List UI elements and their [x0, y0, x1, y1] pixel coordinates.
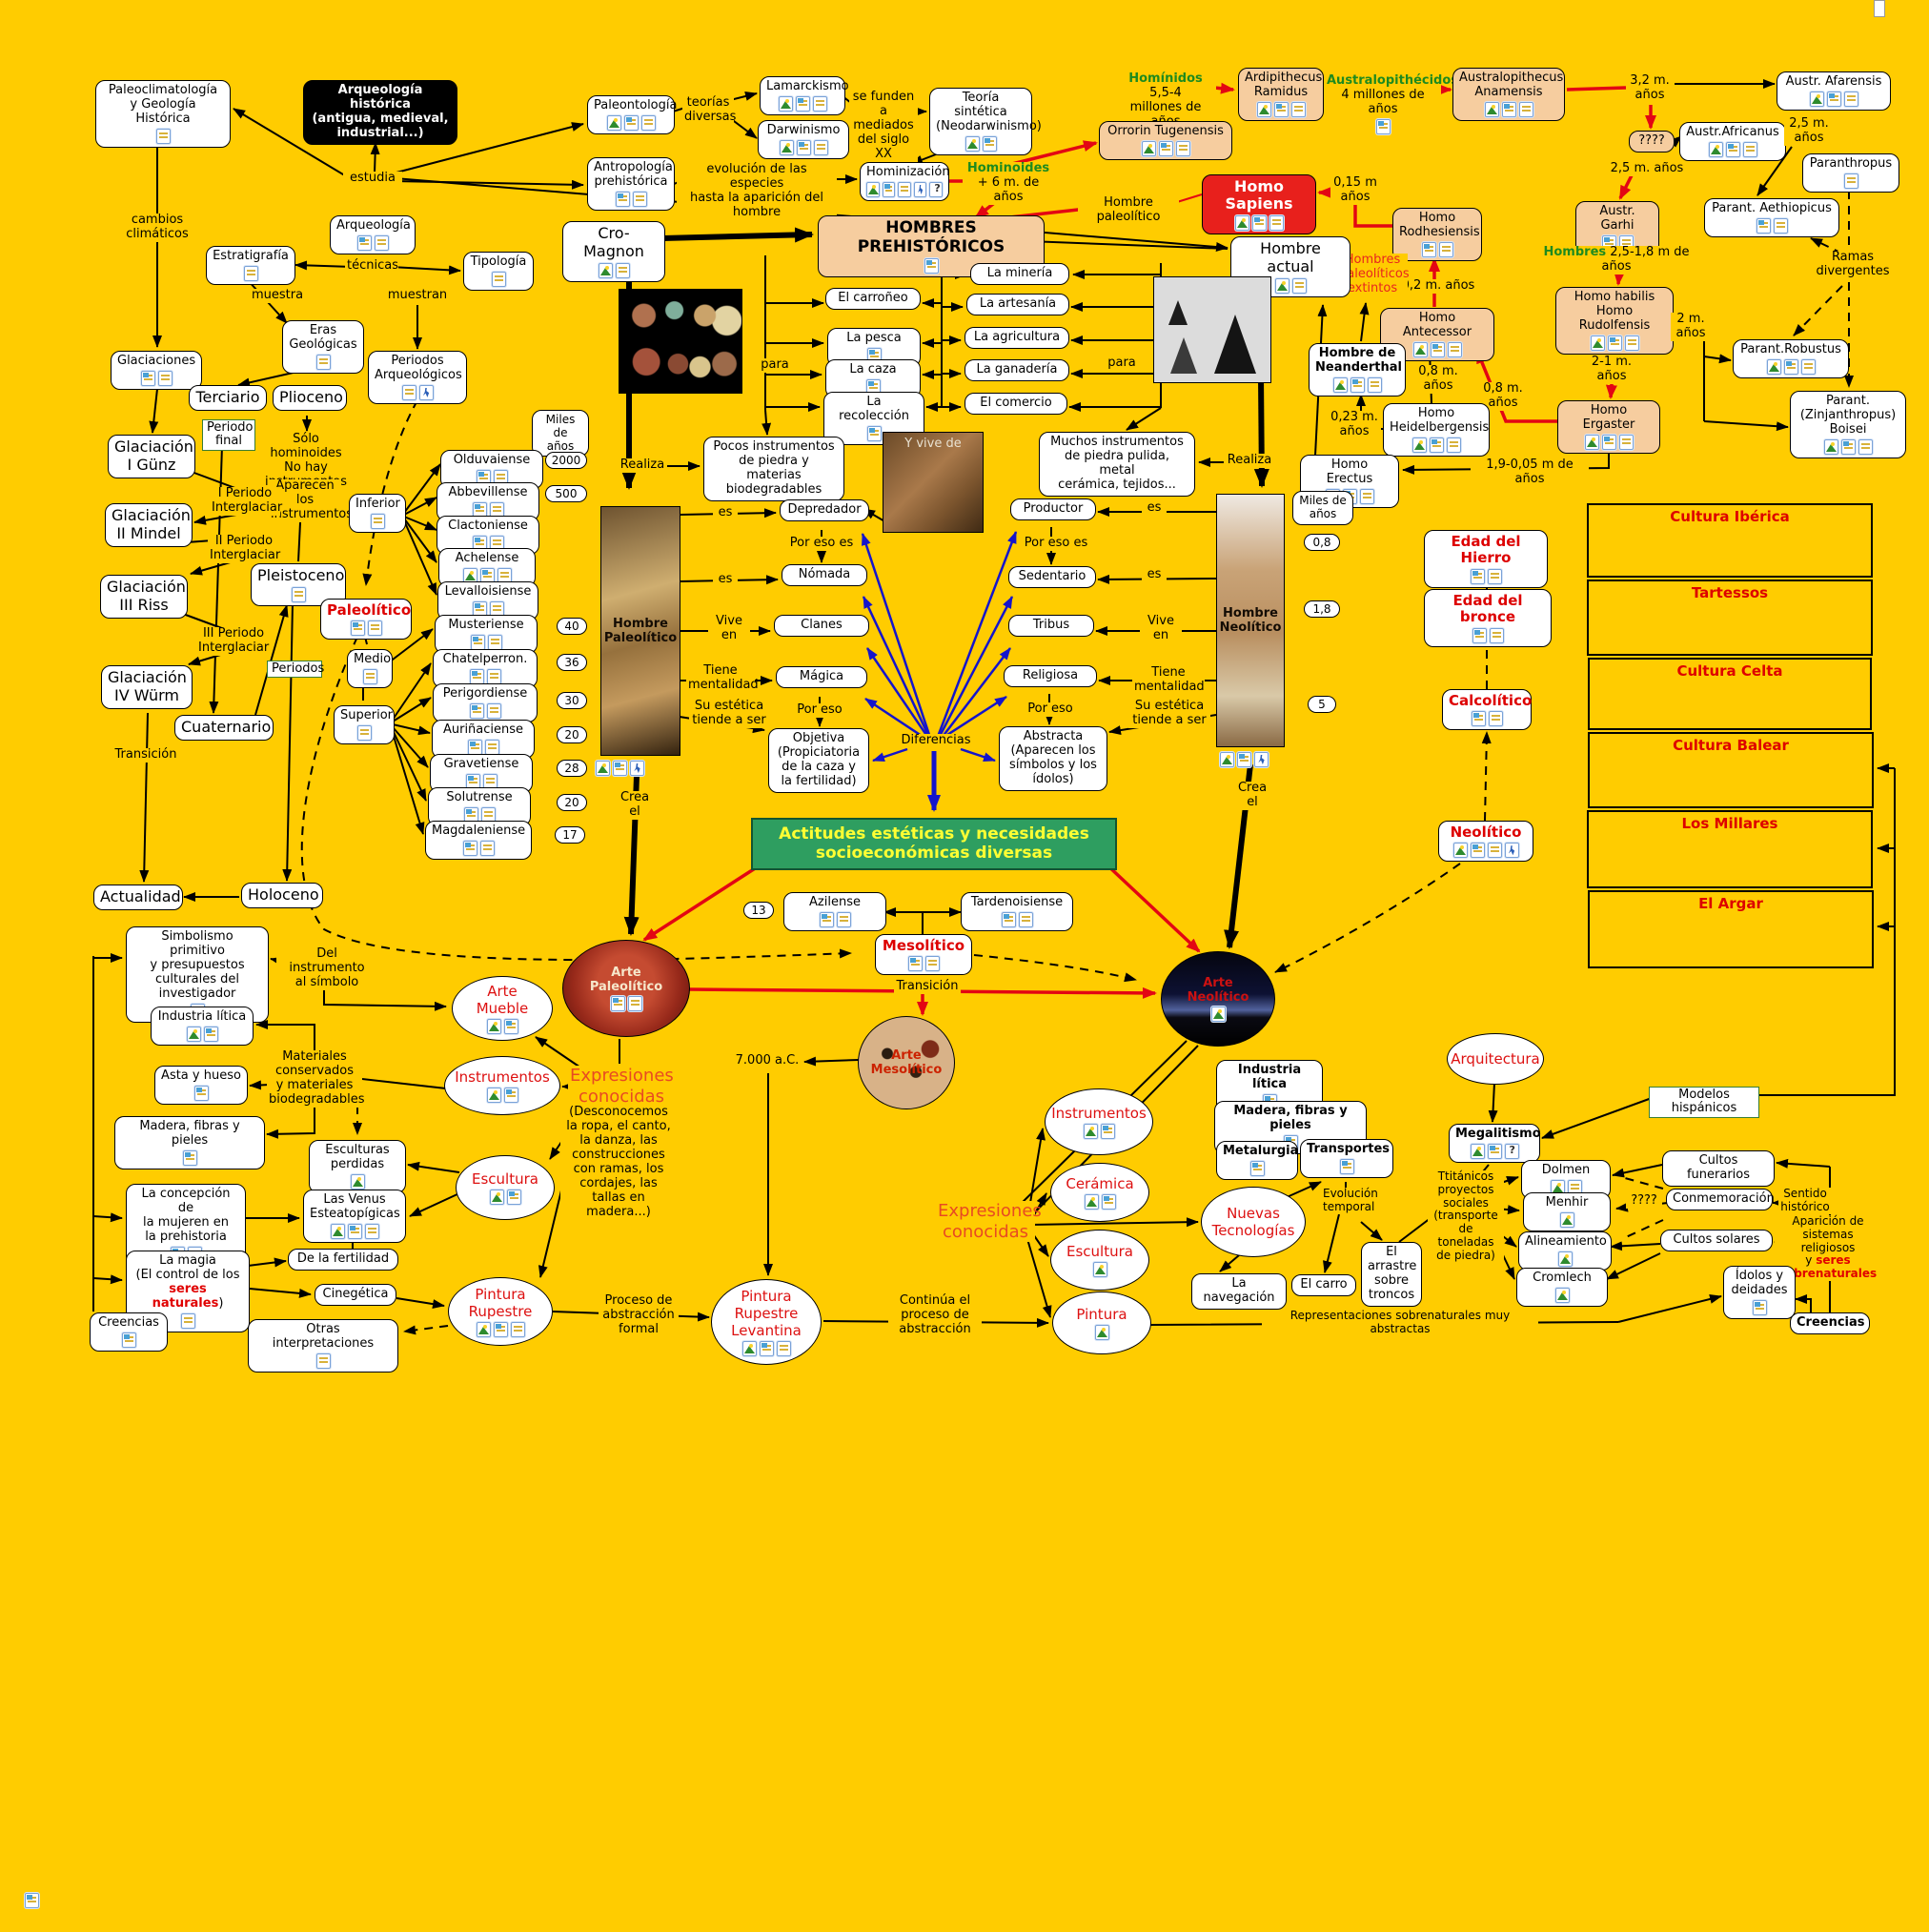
picture-document-icon[interactable]: [983, 136, 997, 152]
node-paleoclimatologia[interactable]: Paleoclimatología y Geología Histórica: [95, 80, 231, 148]
node-cro-magnon[interactable]: Cro-Magnon: [562, 221, 665, 282]
document-icon[interactable]: [1488, 569, 1502, 584]
node-de-la-fertilidad[interactable]: De la fertilidad: [288, 1249, 398, 1271]
arquitectura-oval[interactable]: Arquitectura: [1447, 1033, 1544, 1085]
node-megalitismo[interactable]: Megalitismo: [1449, 1124, 1540, 1163]
label-realiza-der: Realiza: [1224, 454, 1275, 468]
document-icon[interactable]: [487, 669, 501, 684]
image-icon[interactable]: [1585, 435, 1599, 450]
label-titanicos-proyectos: Ttitánicos proyectos sociales (transport…: [1428, 1170, 1504, 1263]
picture-document-icon[interactable]: [357, 235, 372, 251]
document-icon[interactable]: [1844, 92, 1858, 107]
image-icon[interactable]: [1275, 278, 1289, 294]
node-paleolitico[interactable]: Paleolítico: [320, 599, 412, 640]
panel-los-millares[interactable]: Los Millares: [1587, 810, 1873, 888]
node-idolos-y-deidades[interactable]: Ídolos y deidades: [1723, 1266, 1796, 1319]
picture-document-icon[interactable]: [1608, 336, 1622, 351]
picture-document-icon[interactable]: [1237, 752, 1251, 767]
activity-icon[interactable]: [914, 182, 927, 197]
picture-document-icon[interactable]: [1753, 1300, 1767, 1315]
node-industria-litica-izq[interactable]: Industria lítica: [151, 1007, 254, 1046]
node-menhir[interactable]: Menhir: [1523, 1192, 1611, 1231]
picture-document-icon[interactable]: [1430, 437, 1444, 453]
node-parant-boisei[interactable]: Parant. (Zinjanthropus) Boisei: [1790, 391, 1906, 458]
document-icon[interactable]: [363, 669, 377, 684]
activity-icon[interactable]: [419, 385, 434, 400]
activity-icon[interactable]: [630, 761, 644, 776]
node-conmemoracion[interactable]: Conmemoración: [1666, 1189, 1773, 1210]
node-orrorin-tugenensis[interactable]: Orrorin Tugenensis: [1099, 121, 1232, 160]
picture-document-icon[interactable]: [796, 96, 810, 112]
picture-document-icon[interactable]: [867, 426, 882, 441]
image-icon[interactable]: [1093, 1262, 1107, 1277]
node-paleontologia[interactable]: Paleontología: [587, 95, 675, 134]
image-icon[interactable]: [599, 263, 613, 278]
node-inferior[interactable]: Inferior: [349, 494, 406, 533]
document-icon[interactable]: [156, 129, 171, 144]
document-icon[interactable]: [1269, 215, 1284, 231]
node-madera-fibras-izq[interactable]: Madera, fibras y pieles: [114, 1116, 265, 1169]
node-antropologia-prehistorica[interactable]: Antropología prehistórica: [587, 157, 675, 211]
pill-0-8: 0,8: [1304, 534, 1340, 551]
picture-document-icon[interactable]: [1159, 141, 1173, 156]
node-objetiva[interactable]: Objetiva (Propiciatoria de la caza y la …: [768, 728, 869, 793]
picture-document-icon[interactable]: [797, 140, 811, 155]
node-arqueologia-historica[interactable]: Arqueología histórica (antigua, medieval…: [303, 80, 457, 145]
document-icon[interactable]: [777, 1341, 791, 1356]
image-icon[interactable]: [1142, 141, 1156, 156]
picture-document-icon[interactable]: [204, 1027, 218, 1042]
node-eras-geologicas[interactable]: Eras Geológicas: [282, 320, 364, 374]
document-icon[interactable]: [641, 115, 656, 131]
image-icon[interactable]: [477, 1322, 491, 1337]
picture-document-icon[interactable]: [820, 912, 834, 927]
node-la-agricultura[interactable]: La agricultura: [964, 327, 1069, 349]
arte-mesolitico-oval[interactable]: Arte Mesolítico: [858, 1016, 955, 1109]
image-icon[interactable]: [780, 140, 794, 155]
node-homo-habilis-rudolfensis[interactable]: Homo habilis Homo Rudolfensis: [1555, 287, 1674, 355]
picture-document-icon[interactable]: [924, 258, 939, 274]
label-crea-el-der: Crea el: [1233, 782, 1271, 810]
image-icon[interactable]: [607, 115, 621, 131]
panel-tartessos[interactable]: Tartessos: [1587, 580, 1873, 656]
node-teoria-sintetica[interactable]: Teoría sintética (Neodarwinismo): [929, 88, 1032, 155]
node-ardipithecus-ramidus[interactable]: Ardipithecus Ramidus: [1238, 68, 1324, 121]
label-hombres-2-5: Hombres 2,5-1,8 m de años: [1533, 246, 1700, 275]
document-icon[interactable]: [1619, 435, 1634, 450]
pill-5: 5: [1308, 696, 1336, 713]
image-icon[interactable]: [490, 1190, 504, 1205]
document-icon[interactable]: [485, 740, 499, 755]
document-icon[interactable]: [316, 1353, 331, 1369]
image-icon[interactable]: [1555, 1288, 1570, 1303]
document-icon[interactable]: [1858, 439, 1873, 455]
image-icon[interactable]: [351, 1174, 365, 1190]
image-icon[interactable]: [1095, 1325, 1109, 1340]
node-edad-del-bronce[interactable]: Edad del bronce: [1424, 589, 1552, 647]
picture-document-icon[interactable]: [122, 1332, 136, 1348]
picture-document-icon[interactable]: [463, 841, 477, 856]
picture-document-icon[interactable]: [1756, 218, 1771, 234]
question-icon[interactable]: [1505, 1144, 1519, 1159]
node-glaciacion-2-mindel[interactable]: Glaciación II Mindel: [105, 503, 193, 547]
image-icon[interactable]: [965, 136, 980, 152]
picture-document-icon[interactable]: [624, 115, 639, 131]
escultura-der-oval[interactable]: Escultura: [1050, 1230, 1149, 1291]
node-cultos-solares[interactable]: Cultos solares: [1660, 1230, 1773, 1251]
document-icon[interactable]: [1488, 843, 1502, 858]
picture-document-icon[interactable]: [1101, 1124, 1115, 1139]
document-icon[interactable]: [292, 587, 306, 602]
image-icon[interactable]: [1220, 752, 1234, 767]
picture-document-icon[interactable]: [1471, 569, 1485, 584]
node-el-comercio[interactable]: El comercio: [964, 393, 1067, 415]
node-unknown-question[interactable]: ????: [1629, 131, 1675, 153]
picture-document-icon[interactable]: [616, 192, 630, 207]
image-icon[interactable]: [1235, 215, 1249, 231]
node-clanes[interactable]: Clanes: [774, 615, 869, 637]
document-icon[interactable]: [813, 96, 827, 112]
document-icon[interactable]: [1019, 912, 1033, 927]
picture-document-icon[interactable]: [1431, 342, 1445, 357]
image-icon[interactable]: [596, 761, 610, 776]
node-arqueologia[interactable]: Arqueología: [330, 215, 416, 254]
document-icon[interactable]: [898, 182, 911, 197]
node-estratigrafia[interactable]: Estratigrafía: [206, 246, 295, 285]
document-icon[interactable]: [402, 385, 416, 400]
node-asta-y-hueso[interactable]: Asta y hueso: [154, 1066, 248, 1105]
picture-document-icon[interactable]: [883, 182, 896, 197]
document-icon[interactable]: [1291, 102, 1306, 117]
picture-document-icon[interactable]: [1102, 1194, 1116, 1210]
node-homo-heidelbergensis[interactable]: Homo Heidelbergensis: [1383, 403, 1490, 457]
image-icon[interactable]: [1591, 336, 1605, 351]
label-se-funden: se funden a mediados del siglo XX: [849, 91, 918, 162]
node-lamarckismo[interactable]: Lamarckismo: [760, 76, 845, 115]
picture-document-icon[interactable]: [504, 1088, 518, 1103]
node-neolitico[interactable]: Neolítico: [1438, 821, 1533, 862]
picture-document-icon[interactable]: [613, 761, 627, 776]
node-terciario[interactable]: Terciario: [189, 385, 267, 411]
label-por-eso-es-izq: Por eso es: [785, 537, 858, 551]
document-icon[interactable]: [488, 635, 502, 650]
node-mesolitico[interactable]: Mesolítico: [875, 934, 972, 975]
document-icon[interactable]: [158, 371, 173, 386]
node-glaciacion-3-riss[interactable]: Glaciación III Riss: [100, 575, 188, 619]
document-icon[interactable]: [616, 263, 630, 278]
picture-document-icon[interactable]: [1827, 92, 1841, 107]
image-icon[interactable]: [1084, 1124, 1098, 1139]
picture-document-icon[interactable]: [1376, 119, 1391, 134]
picture-document-icon[interactable]: [183, 1150, 197, 1166]
hombre-paleolitico-image[interactable]: Hombre Paleolítico: [600, 506, 680, 756]
pill-500: 500: [545, 485, 587, 502]
picture-document-icon[interactable]: [470, 669, 484, 684]
node-el-arrastre[interactable]: El arrastre sobre troncos: [1361, 1242, 1422, 1307]
node-el-carroneo[interactable]: El carroñeo: [825, 288, 921, 310]
node-austr-afarensis[interactable]: Austr. Afarensis: [1777, 71, 1891, 111]
node-pocos-instrumentos[interactable]: Pocos instrumentos de piedra y materias …: [703, 437, 844, 501]
node-parant-robustus[interactable]: Parant.Robustus: [1733, 339, 1849, 378]
pill-40: 40: [557, 618, 587, 635]
node-hominizacion[interactable]: Hominización: [860, 162, 949, 201]
arte-neolitico-oval[interactable]: Arte Neolítico: [1161, 951, 1275, 1047]
pintura-rupestre-oval[interactable]: Pintura Rupestre: [448, 1277, 553, 1346]
image-icon[interactable]: [1485, 102, 1499, 117]
document-icon[interactable]: [628, 996, 642, 1011]
node-aurinaciense[interactable]: Auriñaciense: [432, 720, 535, 759]
node-sedentario[interactable]: Sedentario: [1008, 566, 1096, 588]
image-icon[interactable]: [1085, 1194, 1099, 1210]
document-icon[interactable]: [1801, 359, 1816, 375]
node-tribus[interactable]: Tribus: [1008, 615, 1094, 637]
node-medio[interactable]: Medio: [347, 649, 393, 688]
picture-document-icon[interactable]: [1726, 142, 1740, 157]
picture-document-icon[interactable]: [1841, 439, 1856, 455]
picture-document-icon[interactable]: [1602, 435, 1616, 450]
image-icon[interactable]: [1471, 1144, 1485, 1159]
document-icon[interactable]: [365, 1224, 379, 1239]
document-icon[interactable]: [244, 266, 258, 281]
node-azilense[interactable]: Azilense: [783, 892, 886, 931]
image-icon[interactable]: [1333, 377, 1348, 393]
image-icon[interactable]: [1412, 437, 1427, 453]
node-nomada[interactable]: Nómada: [782, 564, 867, 586]
node-metalurgia[interactable]: Metalurgia: [1216, 1141, 1298, 1180]
document-icon[interactable]: [511, 1322, 525, 1337]
picture-document-icon[interactable]: [471, 635, 485, 650]
picture-document-icon[interactable]: [1472, 628, 1487, 643]
node-plioceno[interactable]: Plioceno: [273, 385, 347, 411]
node-tardenoisiense[interactable]: Tardenoisiense: [961, 892, 1073, 931]
picture-document-icon[interactable]: [1250, 1161, 1265, 1176]
document-icon[interactable]: [1519, 102, 1533, 117]
node-abstracta[interactable]: Abstracta (Aparecen los símbolos y los í…: [999, 726, 1107, 791]
document-icon[interactable]: [1625, 336, 1639, 351]
document-icon[interactable]: [1292, 278, 1307, 294]
picture-document-icon[interactable]: [351, 620, 365, 636]
node-productor[interactable]: Productor: [1010, 498, 1096, 520]
pintura-rupestre-levantina-oval[interactable]: Pintura Rupestre Levantina: [711, 1279, 822, 1365]
document-icon[interactable]: [1774, 218, 1788, 234]
node-periodo-final[interactable]: Periodo final: [202, 419, 255, 451]
document-icon[interactable]: [1743, 142, 1757, 157]
node-perigordiense[interactable]: Perigordiense: [433, 683, 538, 722]
document-icon[interactable]: [1368, 377, 1382, 393]
document-icon[interactable]: [480, 841, 495, 856]
node-la-artesania[interactable]: La artesanía: [966, 294, 1069, 315]
image-icon[interactable]: [487, 1019, 501, 1034]
node-glaciacion-4-wurm[interactable]: Glaciación IV Würm: [101, 665, 193, 709]
escultura-izq-oval[interactable]: Escultura: [456, 1155, 555, 1220]
picture-document-icon[interactable]: [194, 1086, 209, 1101]
panel-cultura-celta[interactable]: Cultura Celta: [1588, 658, 1872, 730]
picture-document-icon[interactable]: [25, 1893, 39, 1908]
node-glaciaciones[interactable]: Glaciaciones: [111, 351, 202, 390]
image-icon[interactable]: [331, 1224, 345, 1239]
hombre-neolitico-image[interactable]: Hombre Neolítico: [1216, 494, 1285, 747]
picture-document-icon[interactable]: [507, 1190, 521, 1205]
label-muestran: muestran: [385, 289, 450, 303]
panel-cultura-iberica[interactable]: Cultura Ibérica: [1587, 503, 1873, 578]
node-alineamiento[interactable]: Alineamiento: [1518, 1231, 1612, 1271]
node-darwinismo[interactable]: Darwinismo: [758, 120, 849, 159]
node-hombre-de-neanderthal[interactable]: Hombre de Neanderthal: [1309, 343, 1406, 397]
document-icon[interactable]: [368, 620, 382, 636]
node-cultos-funerarios[interactable]: Cultos funerarios: [1662, 1150, 1775, 1187]
node-edad-del-hierro[interactable]: Edad del Hierro: [1424, 530, 1548, 588]
picture-document-icon[interactable]: [1471, 843, 1485, 858]
image-icon[interactable]: [1257, 102, 1271, 117]
node-actualidad[interactable]: Actualidad: [93, 885, 183, 910]
node-australopithecus-anamensis[interactable]: Australopithecus Anamensis: [1452, 68, 1565, 121]
picture-document-icon[interactable]: [1350, 377, 1365, 393]
node-actitudes-esteticas[interactable]: Actitudes estéticas y necesidades socioe…: [751, 818, 1117, 870]
panel-cultura-balear[interactable]: Cultura Balear: [1588, 732, 1874, 808]
node-creencias-izq[interactable]: Creencias: [90, 1312, 168, 1352]
document-icon[interactable]: [1439, 242, 1453, 257]
picture-document-icon[interactable]: [470, 703, 484, 719]
document-icon[interactable]: [837, 912, 851, 927]
node-cromlech[interactable]: Cromlech: [1516, 1268, 1608, 1307]
node-cinegetica[interactable]: Cinegética: [315, 1284, 396, 1306]
node-las-venus[interactable]: Las Venus Esteatopígicas: [303, 1190, 406, 1243]
node-otras-interpretaciones[interactable]: Otras interpretaciones: [248, 1319, 398, 1373]
image-icon[interactable]: [187, 1027, 201, 1042]
node-magica[interactable]: Mágica: [776, 666, 867, 688]
picture-document-icon[interactable]: [1002, 912, 1016, 927]
picture-document-icon[interactable]: [1274, 102, 1289, 117]
image-icon[interactable]: [1824, 439, 1838, 455]
image-icon[interactable]: [1558, 1251, 1573, 1267]
document-icon[interactable]: [1489, 711, 1503, 726]
node-chatelperroniense[interactable]: Chatelperron.: [433, 649, 538, 688]
image-icon[interactable]: [1211, 1007, 1226, 1022]
image-icon[interactable]: [779, 96, 793, 112]
ceramica-oval[interactable]: Cerámica: [1050, 1163, 1149, 1222]
label-desconocemos: (Desconocemos la ropa, el canto, la danz…: [560, 1106, 677, 1220]
instrumentos-der-oval[interactable]: Instrumentos: [1045, 1088, 1153, 1155]
picture-document-icon[interactable]: [504, 1019, 518, 1034]
image-icon[interactable]: [1560, 1212, 1574, 1228]
image-icon[interactable]: [1413, 342, 1428, 357]
image-icon[interactable]: [742, 1341, 757, 1356]
node-glaciacion-1-gunz[interactable]: Glaciación I Günz: [108, 435, 195, 478]
picture-document-icon[interactable]: [141, 371, 155, 386]
node-religiosa[interactable]: Religiosa: [1004, 665, 1097, 687]
label-proceso-abstraccion: Proceso de abstracción formal: [599, 1294, 679, 1337]
node-esculturas-perdidas[interactable]: Esculturas perdidas: [309, 1140, 406, 1193]
activity-icon[interactable]: [1254, 752, 1269, 767]
picture-document-icon[interactable]: [1472, 711, 1486, 726]
document-icon[interactable]: [375, 235, 389, 251]
panel-el-argar[interactable]: El Argar: [1588, 890, 1874, 968]
node-periodos-arqueologicos[interactable]: Periodos Arqueológicos: [368, 351, 467, 404]
node-la-mineria[interactable]: La minería: [970, 263, 1069, 285]
picture-document-icon[interactable]: [1784, 359, 1798, 375]
nuevas-tecnologias-oval[interactable]: Nuevas Tecnologías: [1201, 1187, 1306, 1257]
document-icon[interactable]: [1176, 141, 1190, 156]
document-icon[interactable]: [1447, 437, 1461, 453]
arte-paleolitico-oval[interactable]: Arte Paleolítico: [562, 940, 690, 1037]
document-icon[interactable]: [181, 1313, 195, 1329]
picture-document-icon[interactable]: [1488, 1144, 1502, 1159]
node-parant-aethiopicus[interactable]: Parant. Aethiopicus: [1704, 198, 1839, 237]
document-icon[interactable]: [925, 956, 940, 971]
instrumentos-izq-oval[interactable]: Instrumentos: [444, 1056, 560, 1115]
image-icon[interactable]: [1709, 142, 1723, 157]
node-modelos-hispanicos[interactable]: Modelos hispánicos: [1649, 1087, 1759, 1118]
document-icon[interactable]: [357, 725, 372, 741]
node-cuaternario[interactable]: Cuaternario: [174, 715, 274, 741]
document-icon[interactable]: [371, 514, 385, 529]
activity-icon[interactable]: [1505, 843, 1519, 858]
picture-document-icon[interactable]: [908, 956, 923, 971]
node-austr-africanus[interactable]: Austr.Africanus: [1679, 122, 1786, 161]
label-es-der-1: es: [1142, 501, 1167, 516]
picture-document-icon[interactable]: [1422, 242, 1436, 257]
node-holoceno[interactable]: Holoceno: [241, 883, 323, 908]
document-icon[interactable]: [814, 140, 828, 155]
arte-mueble-oval[interactable]: Arte Mueble: [452, 976, 553, 1041]
picture-document-icon[interactable]: [1252, 215, 1267, 231]
pintura-der-oval[interactable]: Pintura: [1052, 1291, 1151, 1354]
document-icon[interactable]: [1844, 173, 1858, 189]
picture-document-icon[interactable]: [760, 1341, 774, 1356]
label-teorias-diversas: teorías diversas: [682, 96, 734, 125]
document-icon[interactable]: [316, 355, 331, 370]
node-calcolitico[interactable]: Calcolítico: [1442, 689, 1532, 730]
document-icon[interactable]: [1490, 628, 1504, 643]
picture-document-icon[interactable]: [1502, 102, 1516, 117]
document-icon[interactable]: [1448, 342, 1462, 357]
label-vive-en-izq: Vive en: [708, 615, 750, 643]
label-crea-el-izq: Crea el: [616, 791, 654, 820]
image-icon[interactable]: [1453, 843, 1468, 858]
node-la-ganaderia[interactable]: La ganadería: [964, 359, 1069, 381]
picture-document-icon[interactable]: [1340, 1159, 1354, 1174]
node-la-navegacion[interactable]: La navegación: [1191, 1273, 1287, 1310]
node-homo-ergaster[interactable]: Homo Ergaster: [1557, 400, 1660, 454]
picture-document-icon[interactable]: [494, 1322, 508, 1337]
node-musteriense[interactable]: Musteriense: [435, 615, 538, 654]
image-icon[interactable]: [487, 1088, 501, 1103]
node-magdaleniense[interactable]: Magdaleniense: [425, 821, 532, 860]
node-homo-sapiens[interactable]: Homo Sapiens: [1202, 174, 1316, 234]
node-depredador[interactable]: Depredador: [780, 499, 869, 521]
node-el-carro[interactable]: El carro: [1291, 1274, 1356, 1296]
node-transportes[interactable]: Transportes: [1300, 1139, 1393, 1178]
node-muchos-instrumentos[interactable]: Muchos instrumentos de piedra pulida, me…: [1039, 432, 1195, 497]
document-icon[interactable]: [487, 703, 501, 719]
image-icon[interactable]: [1767, 359, 1781, 375]
picture-document-icon[interactable]: [468, 740, 482, 755]
image-icon[interactable]: [1810, 92, 1824, 107]
document-icon[interactable]: [492, 272, 506, 287]
node-paranthropus[interactable]: Paranthropus: [1802, 153, 1899, 193]
picture-document-icon[interactable]: [611, 996, 625, 1011]
document-icon[interactable]: [633, 192, 647, 207]
node-periodos[interactable]: Periodos: [267, 661, 322, 678]
node-tipologia[interactable]: Tipología: [463, 252, 534, 291]
label-2-5-anios-b: 2,5 m. años: [1784, 117, 1834, 146]
document-icon[interactable]: [1360, 489, 1374, 504]
picture-document-icon[interactable]: [348, 1224, 362, 1239]
question-icon[interactable]: [929, 182, 943, 197]
node-creencias-der[interactable]: Creencias: [1790, 1312, 1870, 1334]
node-superior[interactable]: Superior: [334, 705, 395, 744]
image-icon[interactable]: [866, 182, 880, 197]
